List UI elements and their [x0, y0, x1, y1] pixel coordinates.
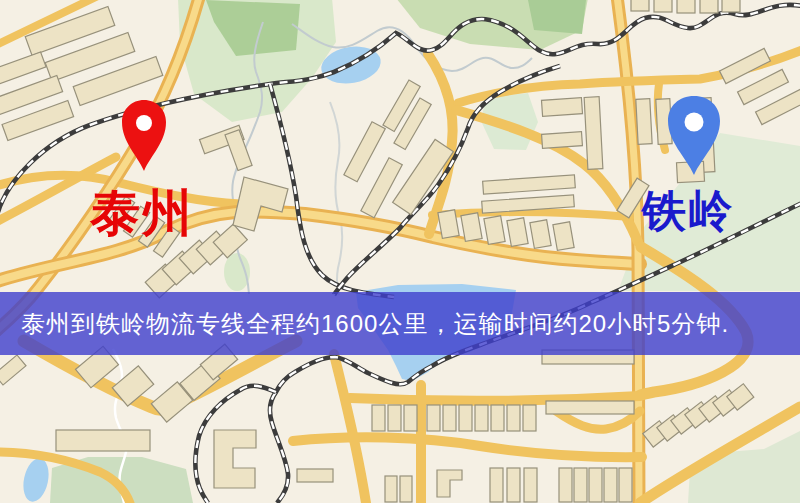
map-graphic	[0, 0, 800, 503]
origin-city-label: 泰州	[90, 180, 194, 247]
route-banner-text: 泰州到铁岭物流专线全程约1600公里，运输时间约20小时5分钟.	[0, 308, 729, 340]
destination-pin-hole	[685, 113, 704, 132]
destination-city-label: 铁岭	[642, 182, 734, 241]
map-canvas: 泰州 铁岭 泰州到铁岭物流专线全程约1600公里，运输时间约20小时5分钟.	[0, 0, 800, 503]
route-banner: 泰州到铁岭物流专线全程约1600公里，运输时间约20小时5分钟.	[0, 292, 800, 355]
origin-pin-hole	[136, 115, 152, 131]
